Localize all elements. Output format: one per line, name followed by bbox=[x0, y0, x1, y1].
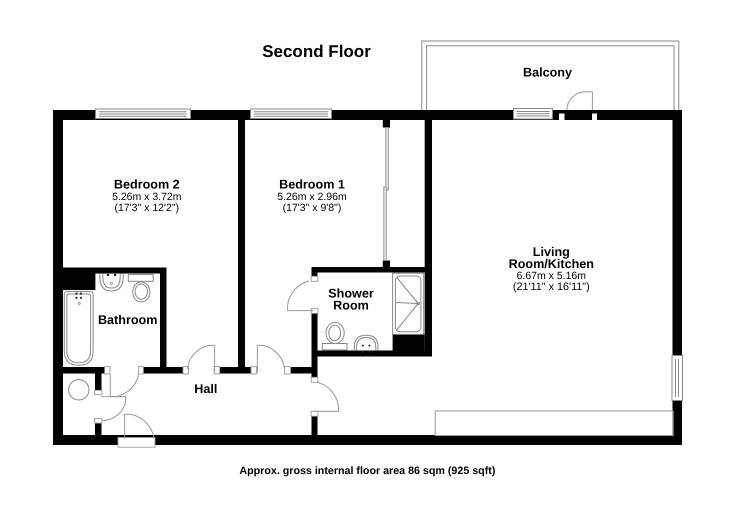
svg-text:Bedroom 1: Bedroom 1 bbox=[279, 177, 345, 191]
svg-text:Balcony: Balcony bbox=[523, 66, 572, 80]
svg-text:Second Floor: Second Floor bbox=[262, 42, 371, 61]
svg-text:Approx. gross internal floor a: Approx. gross internal floor area 86 sqm… bbox=[239, 465, 495, 477]
svg-text:Hall: Hall bbox=[194, 382, 217, 396]
svg-text:(17'3" x 9'8"): (17'3" x 9'8") bbox=[283, 202, 342, 214]
svg-text:6.67m x 5.16m: 6.67m x 5.16m bbox=[517, 270, 587, 282]
svg-text:(17'3" x 12'2"): (17'3" x 12'2") bbox=[115, 202, 180, 214]
svg-text:Bedroom 2: Bedroom 2 bbox=[114, 177, 180, 191]
svg-text:Bathroom: Bathroom bbox=[98, 313, 157, 327]
svg-text:Room: Room bbox=[333, 298, 369, 312]
svg-text:(21'11" x 16'11"): (21'11" x 16'11") bbox=[513, 281, 590, 293]
